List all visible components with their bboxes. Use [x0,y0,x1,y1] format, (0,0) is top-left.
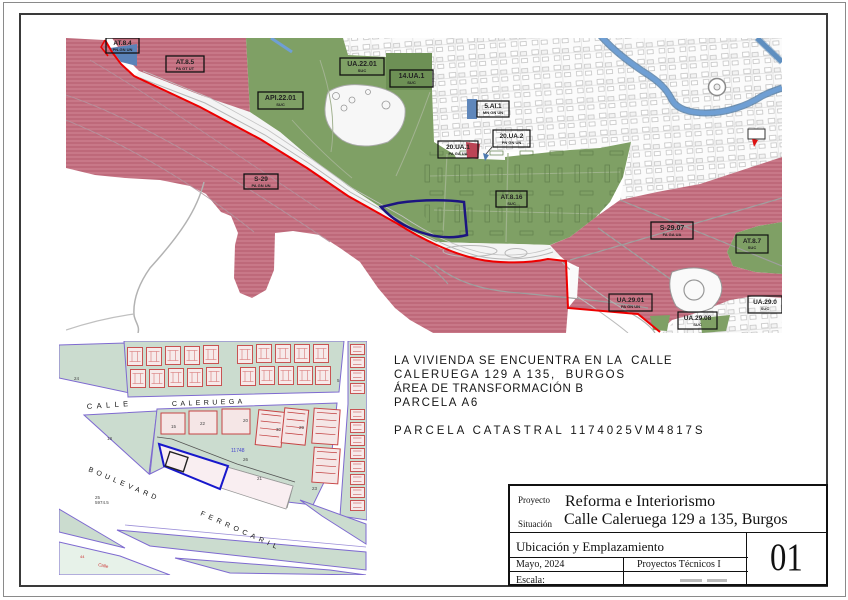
svg-text:20.UA.1: 20.UA.1 [446,144,470,151]
svg-text:AT.8.5: AT.8.5 [176,59,195,66]
svg-text:PA GA UA: PA GA UA [449,151,468,156]
svg-text:24: 24 [74,376,80,381]
svg-text:SUC: SUC [693,322,702,327]
svg-text:S-29.07: S-29.07 [660,225,685,232]
svg-text:22: 22 [200,421,206,426]
svg-text:SUC: SUC [407,80,416,85]
svg-text:MN GN UN: MN GN UN [483,110,503,115]
svg-text:30: 30 [276,427,282,432]
svg-text:PN-GN UN: PN-GN UN [113,47,133,52]
svg-text:PN GN UN: PN GN UN [502,140,522,145]
svg-text:14.UA.1: 14.UA.1 [399,73,425,80]
svg-text:23: 23 [312,486,318,491]
svg-text:AT.8.16: AT.8.16 [501,194,523,201]
svg-text:44: 44 [80,554,85,559]
svg-text:UA.22.01: UA.22.01 [347,61,377,68]
svg-text:UA.29.01: UA.29.01 [617,297,645,304]
svg-text:5.AI.1: 5.AI.1 [484,103,502,110]
svg-text:26: 26 [243,457,249,462]
svg-text:29: 29 [299,425,305,430]
svg-text:PA GN UN: PA GN UN [621,304,640,309]
svg-text:S-29: S-29 [254,176,268,183]
svg-text:11748: 11748 [231,448,245,454]
svg-text:5974.5: 5974.5 [95,500,109,505]
svg-text:SUC: SUC [358,68,367,73]
svg-text:15: 15 [171,424,177,429]
svg-text:18: 18 [107,436,113,441]
svg-text:UA.29.0: UA.29.0 [753,299,777,306]
svg-text:FA GA UA: FA GA UA [663,232,682,237]
svg-text:SUC: SUC [748,245,757,250]
svg-text:PA GN UN: PA GN UN [251,183,270,188]
svg-text:PA GT UT: PA GT UT [176,66,195,71]
svg-text:SUC: SUC [507,201,516,206]
svg-text:AT.8.7: AT.8.7 [743,238,762,245]
svg-text:SUC: SUC [761,306,770,311]
svg-text:API.22.01: API.22.01 [265,95,296,102]
svg-text:AT.8.4: AT.8.4 [113,40,132,47]
svg-text:UA.29.08: UA.29.08 [684,315,712,322]
svg-text:20: 20 [243,418,249,423]
svg-text:21: 21 [257,476,263,481]
svg-text:20.UA.2: 20.UA.2 [500,133,524,140]
svg-text:SUC: SUC [276,102,285,107]
